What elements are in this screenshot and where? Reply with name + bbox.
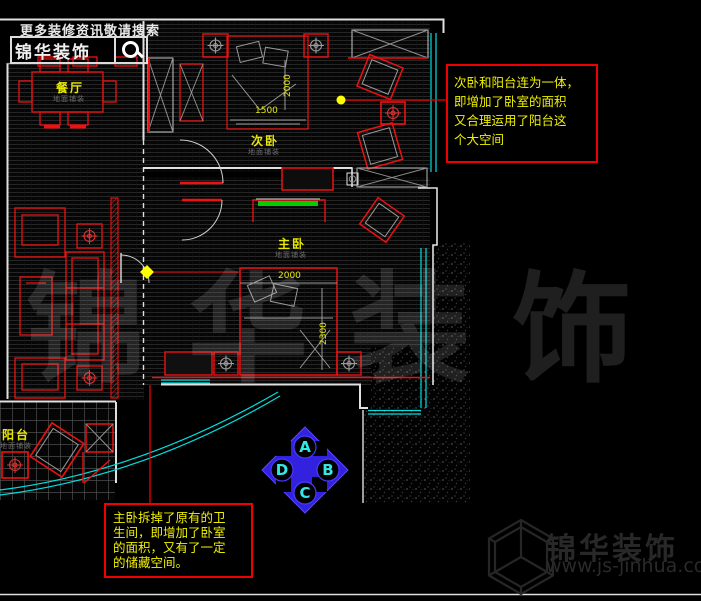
room-sub-secondary: 地面铺装	[248, 147, 280, 157]
compass-letter-d: D	[273, 461, 291, 479]
note-line: 的面积，又有了一定	[113, 540, 251, 555]
master-bedroom-note: 主卧拆掉了原有的卫 生间，即增加了卧室 的面积，又有了一定 的储藏空间。	[104, 503, 253, 578]
note-line: 的储藏空间。	[113, 555, 251, 570]
search-brand-label: 锦华装饰	[12, 38, 114, 63]
brand-watermark: 锦华装饰	[26, 232, 674, 406]
dim-secondary-bed-length: 2000	[283, 74, 293, 97]
floorplan-screenshot: 锦华装饰 更多装修资讯敬请搜索 锦华装饰 餐厅 地面铺装 次卧 地面铺装 主卧 …	[0, 0, 701, 601]
footer-url: www.js-jinhua.com	[546, 555, 701, 577]
note-line: 生间，即增加了卧室	[113, 525, 251, 540]
hexagon-cube-logo-icon	[489, 520, 553, 594]
note-line: 即增加了卧室的面积	[454, 92, 596, 111]
dim-master-bed-length: 2300	[319, 322, 329, 345]
dim-master-bed-width: 2000	[278, 271, 301, 281]
magnifier-icon[interactable]	[116, 38, 146, 62]
room-sub-balcony: 地面铺装	[0, 441, 32, 451]
note-line: 个大空间	[454, 130, 596, 149]
dim-secondary-bed-width: 1500	[255, 106, 278, 116]
room-sub-master: 地面铺装	[275, 250, 307, 260]
compass-letter-c: C	[296, 484, 314, 502]
leader-dot	[337, 96, 346, 105]
compass-letter-a: A	[296, 438, 314, 456]
secondary-bedroom-note: 次卧和阳台连为一体， 即增加了卧室的面积 又合理运用了阳台这 个大空间	[446, 64, 598, 163]
tv-unit	[258, 201, 318, 206]
search-box[interactable]: 锦华装饰	[10, 36, 148, 64]
note-line: 次卧和阳台连为一体，	[454, 73, 596, 92]
note-line: 又合理运用了阳台这	[454, 111, 596, 130]
compass-letter-b: B	[319, 461, 337, 479]
note-line: 主卧拆掉了原有的卫	[113, 510, 251, 525]
room-sub-dining: 地面铺装	[53, 94, 85, 104]
